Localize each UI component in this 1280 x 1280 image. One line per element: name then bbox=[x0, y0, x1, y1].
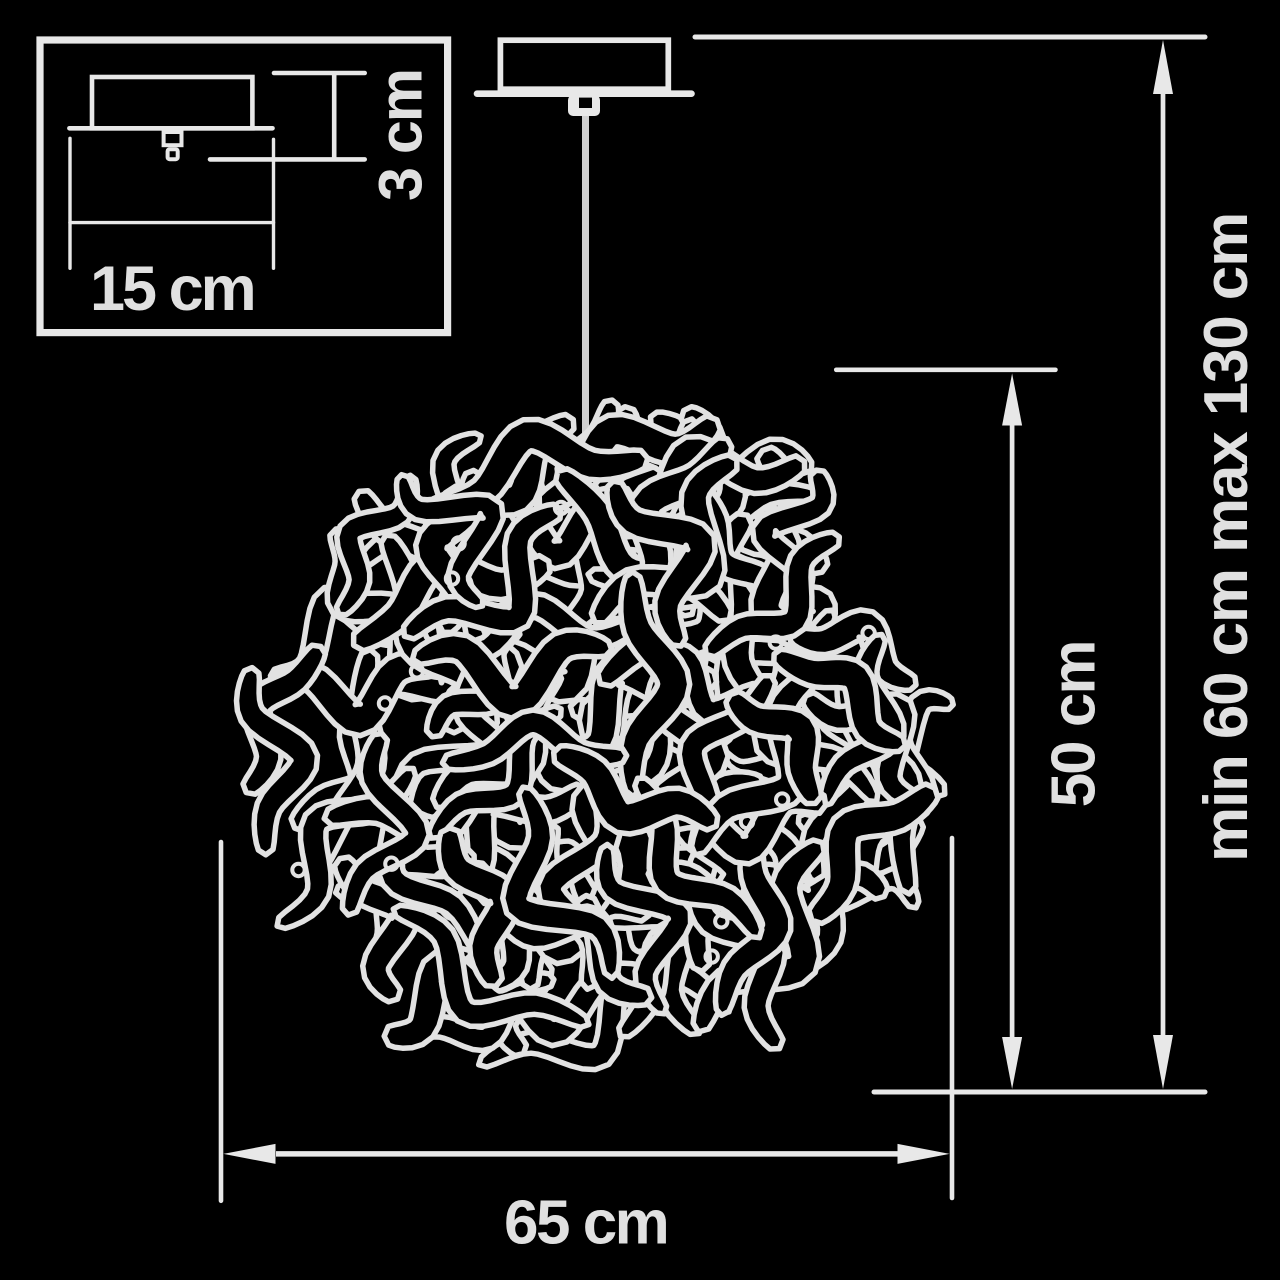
svg-text:65 cm: 65 cm bbox=[504, 1189, 667, 1258]
svg-text:3 cm: 3 cm bbox=[367, 70, 435, 201]
svg-text:min 60 cm max 130 cm: min 60 cm max 130 cm bbox=[1192, 213, 1261, 862]
svg-text:15 cm: 15 cm bbox=[90, 254, 254, 324]
svg-text:50 cm: 50 cm bbox=[1039, 641, 1108, 807]
